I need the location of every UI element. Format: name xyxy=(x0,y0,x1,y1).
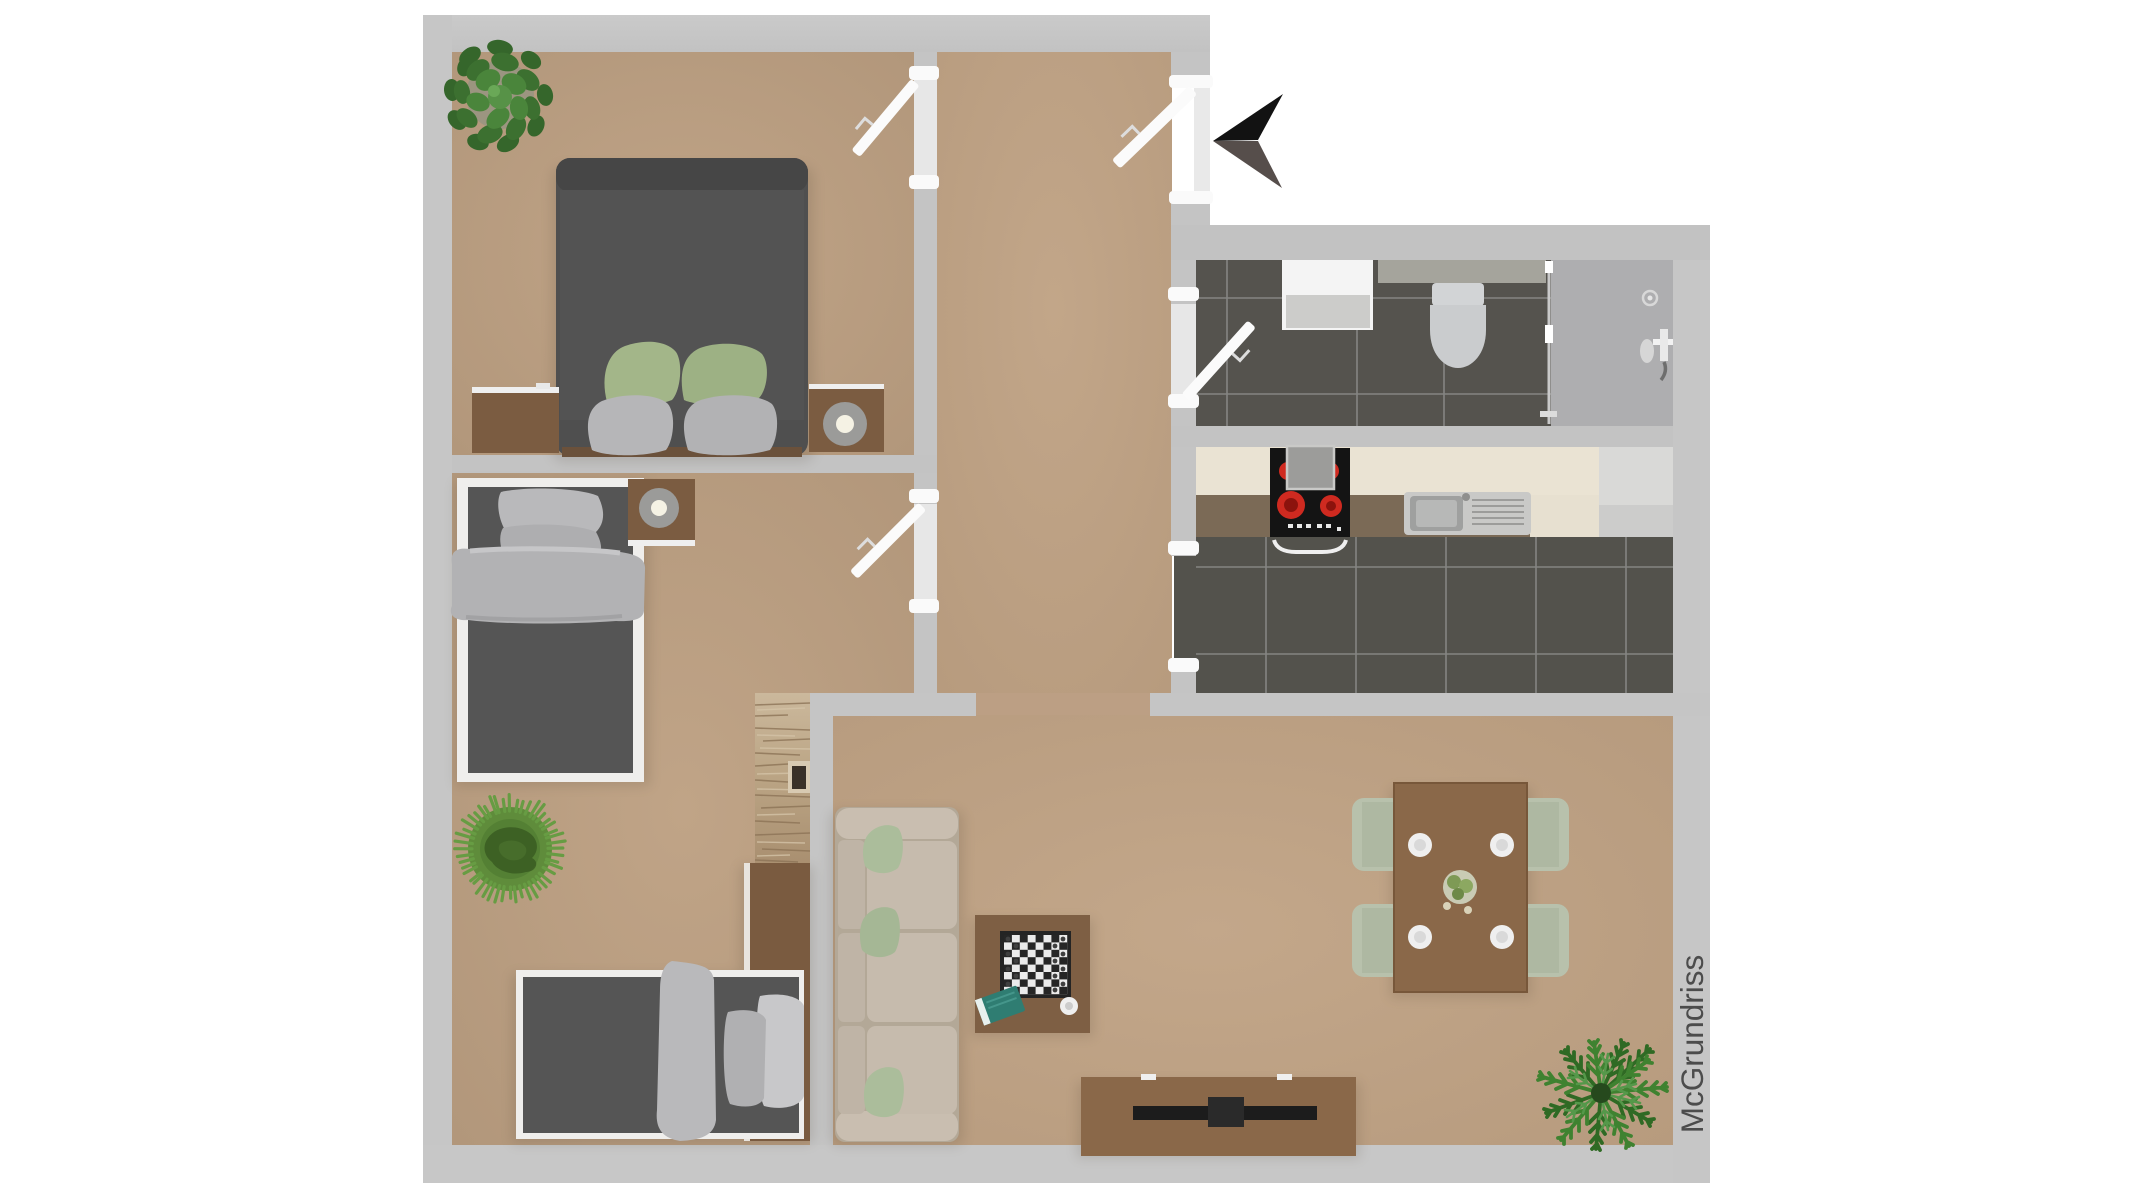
svg-text:McGrundriss: McGrundriss xyxy=(1674,955,1710,1134)
